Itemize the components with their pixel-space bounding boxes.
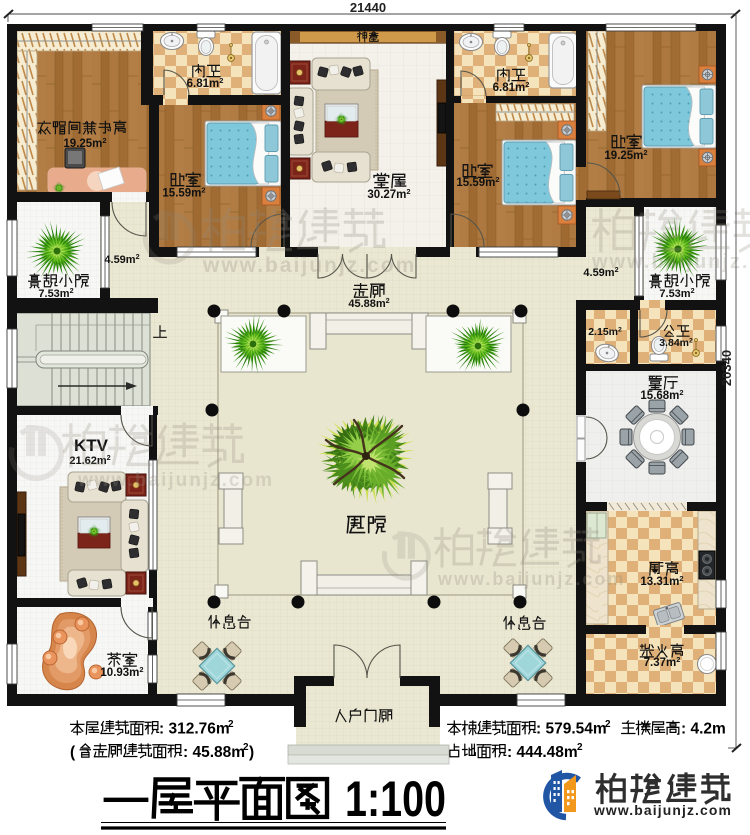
svg-text:: 312.76m: : 312.76m (159, 721, 230, 738)
svg-text:: 45.88m: : 45.88m (183, 744, 245, 761)
svg-text:13.31m2: 13.31m2 (640, 574, 683, 588)
svg-text:20340: 20340 (719, 350, 734, 386)
svg-text:7.37m2: 7.37m2 (644, 655, 681, 669)
svg-text:30.27m2: 30.27m2 (367, 187, 410, 201)
svg-text:: 444.48m: : 444.48m (507, 744, 578, 761)
svg-text:7.53m2: 7.53m2 (38, 286, 73, 300)
svg-text:www.baijunjz.com: www.baijunjz.com (202, 254, 416, 277)
svg-text:1:100: 1:100 (345, 771, 446, 827)
svg-text:4.59m2: 4.59m2 (104, 252, 139, 266)
svg-text:45.88m2: 45.88m2 (348, 296, 389, 310)
svg-text:15.59m2: 15.59m2 (162, 186, 205, 200)
svg-text:www.baijunjz.com: www.baijunjz.com (591, 251, 750, 273)
svg-text:2: 2 (605, 719, 611, 730)
svg-text:15.59m2: 15.59m2 (456, 175, 499, 189)
svg-text:3.84m2: 3.84m2 (659, 337, 693, 349)
svg-text:19.25m2: 19.25m2 (63, 136, 106, 150)
svg-text:: 4.2m: : 4.2m (681, 721, 726, 738)
svg-text:2.15m2: 2.15m2 (588, 326, 622, 338)
svg-text:(: ( (70, 744, 76, 761)
svg-text:www.baijunjz.com: www.baijunjz.com (437, 569, 625, 589)
svg-text:6.81m2: 6.81m2 (493, 80, 530, 94)
svg-text:www.baijunjz.com: www.baijunjz.com (77, 470, 274, 491)
svg-text:2: 2 (228, 719, 234, 730)
svg-text:7.53m2: 7.53m2 (659, 286, 694, 300)
svg-text:www.baijunjz.com: www.baijunjz.com (593, 803, 732, 818)
svg-text:: 579.54m: : 579.54m (536, 721, 607, 738)
svg-text:19.25m2: 19.25m2 (604, 148, 647, 162)
svg-text:21440: 21440 (350, 0, 386, 15)
svg-text:): ) (249, 744, 254, 761)
svg-text:2: 2 (577, 742, 583, 753)
svg-text:6.81m2: 6.81m2 (187, 76, 224, 90)
svg-text:10.93m2: 10.93m2 (100, 665, 143, 679)
svg-text:15.68m2: 15.68m2 (640, 388, 683, 402)
